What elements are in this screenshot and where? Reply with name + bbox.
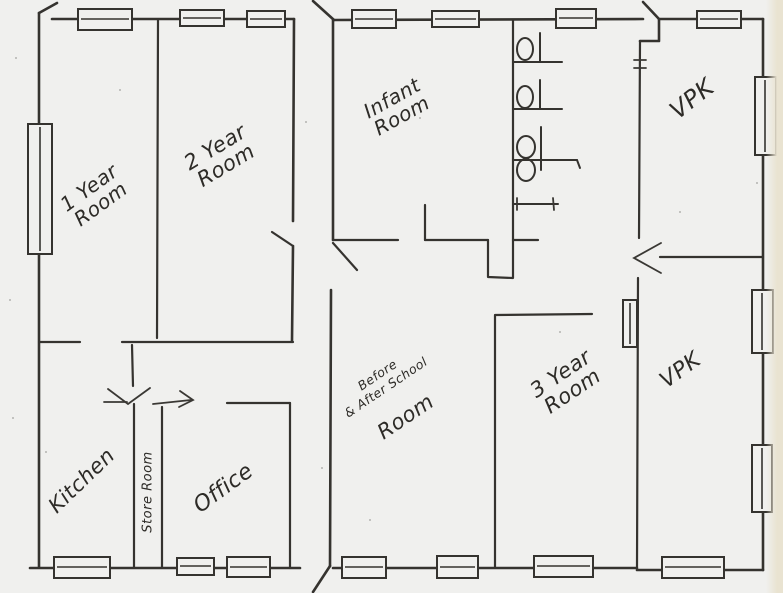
door-swing-icon (132, 345, 133, 386)
window-icon (227, 557, 270, 577)
toilet-icon (517, 80, 540, 109)
double-toilet-icon (517, 127, 541, 181)
door-arrow-icon (634, 243, 661, 273)
window-icon (177, 558, 214, 575)
door-swing-icon (333, 243, 357, 270)
window-icon (54, 557, 110, 578)
floor-plan-drawing (0, 0, 783, 593)
window-icon (28, 124, 52, 254)
window-icon (432, 11, 479, 27)
door-arrow-icon (153, 391, 193, 407)
scan-noise (9, 57, 758, 521)
window-icon (697, 11, 741, 28)
window-icon (352, 10, 396, 28)
window-icon (556, 9, 596, 28)
floor-plan: 1 Year Room 2 Year Room Infant Room VPK … (0, 0, 783, 593)
toilet-icon (517, 33, 540, 62)
window-icon (437, 556, 478, 578)
left-wing-walls (30, 3, 300, 568)
window-icon (534, 556, 593, 577)
window-icon (180, 10, 224, 26)
window-icon (623, 300, 637, 347)
window-icon (752, 290, 773, 353)
window-icon (752, 445, 772, 512)
window-icon (342, 557, 386, 578)
right-wing-walls (634, 19, 763, 570)
middle-wing-walls (313, 1, 659, 592)
door-arrow-icon (104, 388, 150, 404)
window-icon (662, 557, 724, 578)
door-swing-icon (272, 232, 293, 246)
window-icon (247, 11, 285, 27)
window-icon (78, 9, 132, 30)
window-icon (755, 77, 776, 155)
